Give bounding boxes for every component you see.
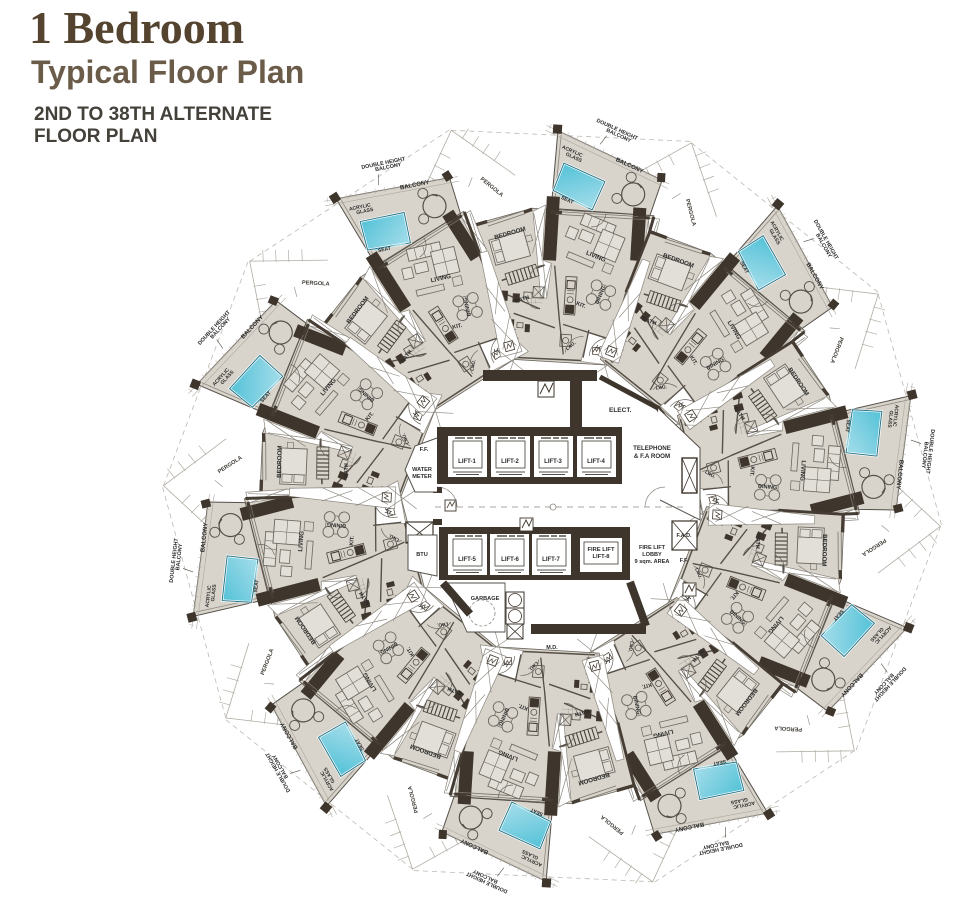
svg-text:M.D.: M.D.	[546, 645, 558, 651]
svg-text:FIRE LIFT: FIRE LIFT	[639, 545, 666, 551]
svg-text:BTU: BTU	[416, 552, 428, 558]
svg-text:LIFT-5: LIFT-5	[458, 557, 476, 563]
svg-text:LIFT-3: LIFT-3	[544, 459, 562, 465]
svg-text:F.F.: F.F.	[680, 558, 689, 564]
svg-text:TELEPHONE: TELEPHONE	[633, 445, 671, 452]
svg-text:LIFT-7: LIFT-7	[542, 557, 560, 563]
svg-text:F.A.D.: F.A.D.	[677, 533, 692, 539]
svg-text:F.F.: F.F.	[420, 447, 429, 453]
svg-text:FIRE LIFT: FIRE LIFT	[587, 547, 615, 553]
svg-text:9 sqm. AREA: 9 sqm. AREA	[635, 559, 670, 565]
svg-text:2ND TO 38TH ALTERNATE: 2ND TO 38TH ALTERNATE	[34, 104, 272, 125]
svg-text:LIFT-6: LIFT-6	[501, 557, 519, 563]
svg-text:LIFT-2: LIFT-2	[501, 459, 519, 465]
svg-text:& F.A ROOM: & F.A ROOM	[634, 453, 670, 460]
svg-text:ELECT.: ELECT.	[609, 407, 632, 414]
svg-text:LIFT-4: LIFT-4	[587, 459, 605, 465]
svg-text:METER: METER	[412, 474, 432, 480]
svg-text:1 Bedroom: 1 Bedroom	[29, 2, 244, 53]
svg-text:LOBBY: LOBBY	[642, 552, 662, 558]
svg-text:GARBAGE: GARBAGE	[471, 596, 500, 602]
svg-text:WATER: WATER	[412, 467, 432, 473]
svg-text:LIFT-1: LIFT-1	[458, 459, 476, 465]
svg-text:Typical Floor Plan: Typical Floor Plan	[31, 54, 304, 90]
svg-text:FLOOR PLAN: FLOOR PLAN	[34, 126, 158, 147]
svg-text:LIFT-8: LIFT-8	[592, 554, 610, 560]
